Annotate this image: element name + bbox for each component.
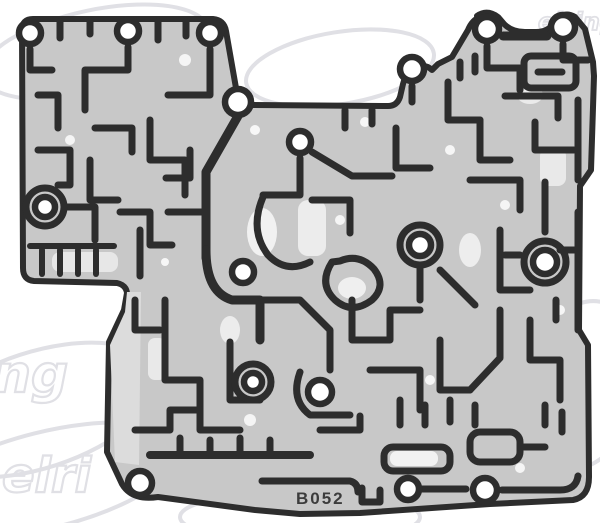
bolt-hole: [400, 57, 424, 81]
bolt-hole: [225, 89, 251, 115]
bolt-hole: [117, 20, 139, 42]
bolt-hole: [475, 17, 499, 41]
bolt-hole: [533, 250, 557, 274]
bolt-hole: [199, 22, 221, 44]
bolt-hole: [551, 15, 575, 39]
product-photo: ng elri elring: [0, 0, 600, 523]
bolt-hole: [244, 373, 262, 391]
bolt-hole: [289, 131, 311, 153]
watermark-text-bottom-left: elri: [2, 448, 92, 504]
bolt-hole: [35, 197, 55, 217]
bolt-hole: [19, 22, 41, 44]
gasket-photo: ng elri elring: [0, 0, 600, 523]
part-marking-label: B052: [296, 489, 345, 508]
bolt-hole: [397, 478, 419, 500]
bolt-hole: [409, 234, 431, 256]
bolt-hole: [128, 471, 152, 495]
bolt-hole: [473, 478, 497, 502]
bolt-hole: [308, 380, 332, 404]
watermark-text-left: ng: [0, 345, 68, 405]
bolt-hole: [232, 261, 254, 283]
